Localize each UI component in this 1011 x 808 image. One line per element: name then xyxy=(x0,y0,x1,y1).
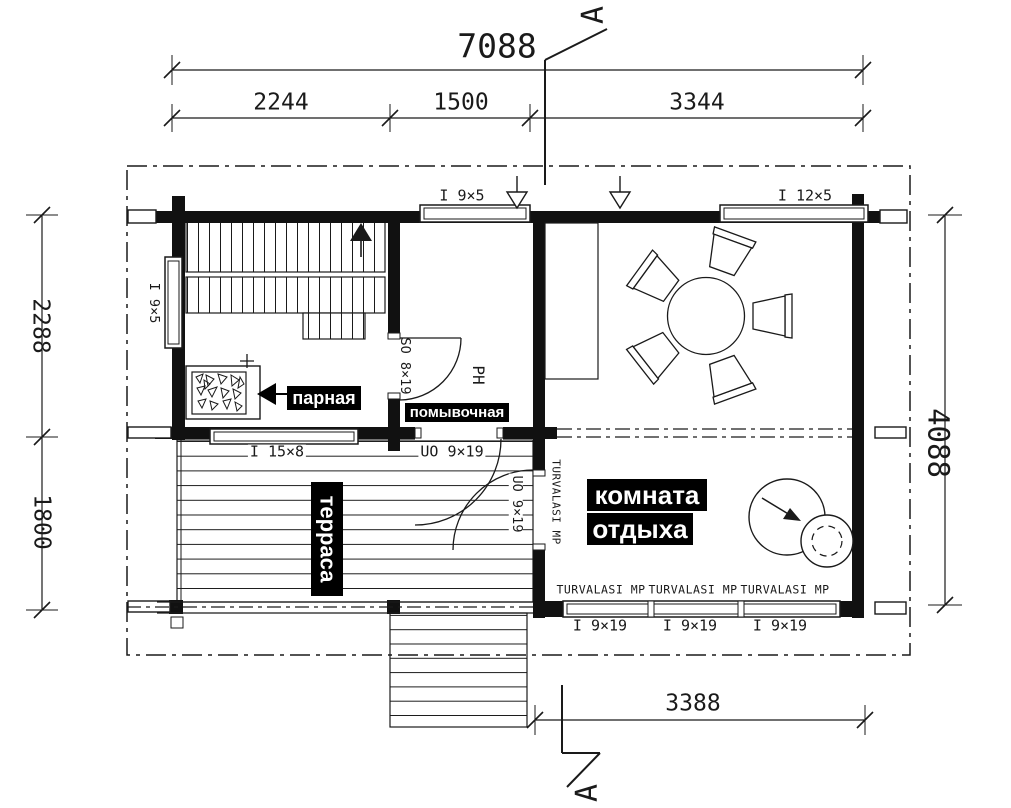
room-label-washroom: помывочная xyxy=(405,403,509,422)
dim-right-4088: 4088 xyxy=(924,408,953,478)
dim-bottom-3388: 3388 xyxy=(665,693,720,716)
window-label-bottom-1: I 9×19 xyxy=(573,619,627,634)
safety-glass-label-1: TURVALASI MP xyxy=(556,584,645,596)
safety-glass-label-3: TURVALASI MP xyxy=(740,584,829,596)
chair xyxy=(701,227,756,279)
window-label-bottom-3: I 9×19 xyxy=(753,619,807,634)
door-label-terrace: UO 9×19 xyxy=(418,445,485,460)
safety-glass-label-vertical: TURVALASI MP xyxy=(551,457,562,546)
room-label-terrace: терраса xyxy=(311,482,343,596)
round-table xyxy=(668,278,745,355)
room-label-lounge-line2: отдыха xyxy=(587,513,693,545)
sauna-label-arrow xyxy=(257,383,289,405)
window-label-bottom-2: I 9×19 xyxy=(663,619,717,634)
sauna-stove xyxy=(186,354,260,419)
dim-total-width: 7088 xyxy=(457,30,536,63)
dim-seg-2244: 2244 xyxy=(253,92,308,115)
section-letter-top: А xyxy=(579,6,609,24)
chair xyxy=(753,294,792,338)
dining-set xyxy=(627,227,792,404)
dim-seg-3344: 3344 xyxy=(669,92,724,115)
cabinet xyxy=(545,223,598,379)
entrance-steps xyxy=(390,613,527,727)
dim-left-2288: 2288 xyxy=(29,298,52,353)
room-label-sauna: парная xyxy=(287,386,361,410)
floor-plan-drawing: 7088 2244 1500 3344 2288 1800 4088 3388 … xyxy=(0,0,1011,808)
window-label-top-left: I 9×5 xyxy=(439,189,484,204)
door-label-lounge: UO 9×19 xyxy=(509,474,523,535)
window-label-sauna: I 15×8 xyxy=(248,445,306,460)
room-label-lounge-line1: комната xyxy=(587,479,707,511)
door-label-sauna-door: SO 8×19 xyxy=(397,338,411,395)
section-letter-bottom: А xyxy=(573,784,603,802)
section-mark-lines xyxy=(545,29,607,787)
safety-glass-label-2: TURVALASI MP xyxy=(648,584,737,596)
dim-left-1800: 1800 xyxy=(30,494,53,549)
window-label-left: I 9×5 xyxy=(146,283,160,324)
down-arrows xyxy=(507,176,630,208)
window-label-top-right: I 12×5 xyxy=(778,189,832,204)
chair xyxy=(701,352,756,404)
washroom-mark: PH xyxy=(470,365,486,384)
loft-edge-dashes xyxy=(557,429,852,437)
dim-seg-1500: 1500 xyxy=(433,92,488,115)
lounge-fireplace xyxy=(749,479,853,567)
terrace-deck xyxy=(177,440,533,602)
